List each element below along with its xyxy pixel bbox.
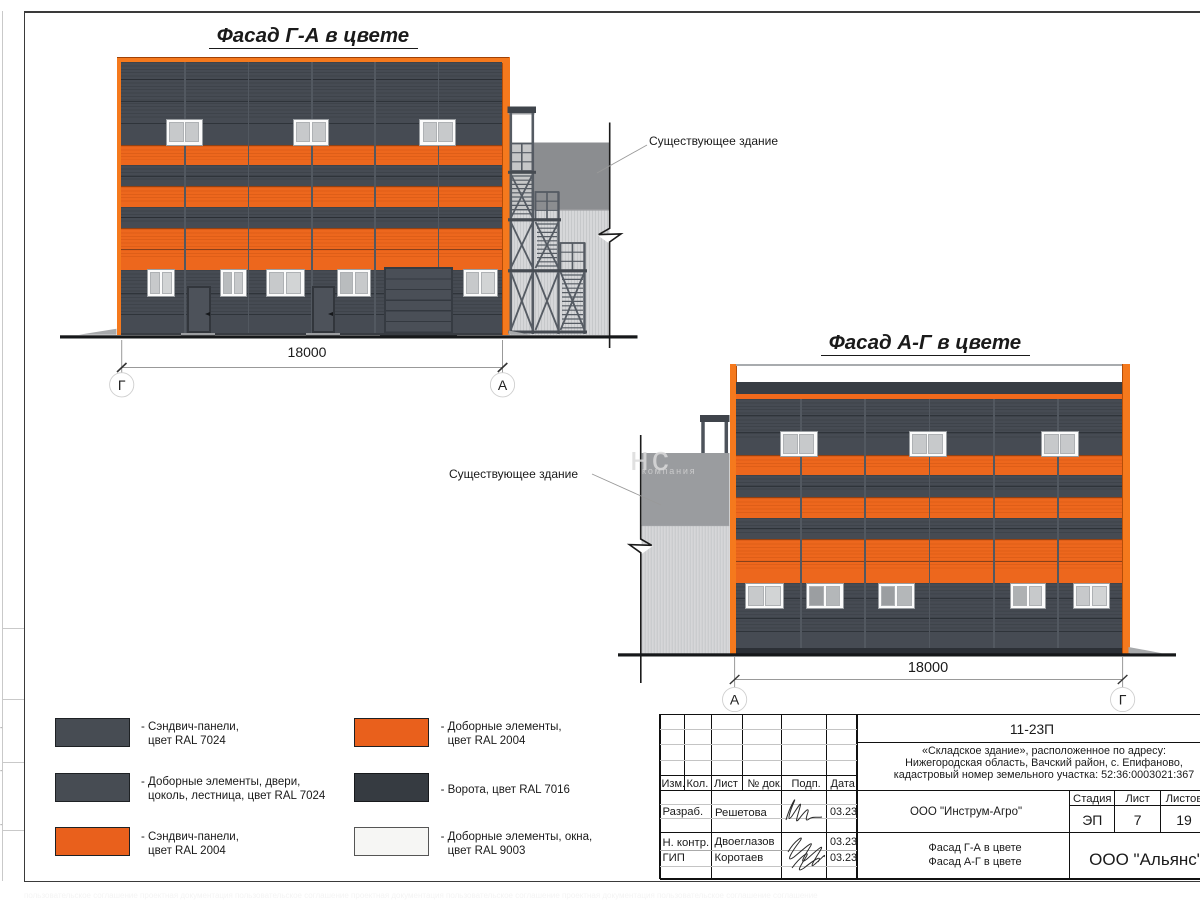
svg-text:А: А xyxy=(730,692,740,708)
svg-text:Г: Г xyxy=(1119,692,1127,708)
svg-text:Г: Г xyxy=(118,377,126,393)
svg-text:А: А xyxy=(498,377,508,393)
